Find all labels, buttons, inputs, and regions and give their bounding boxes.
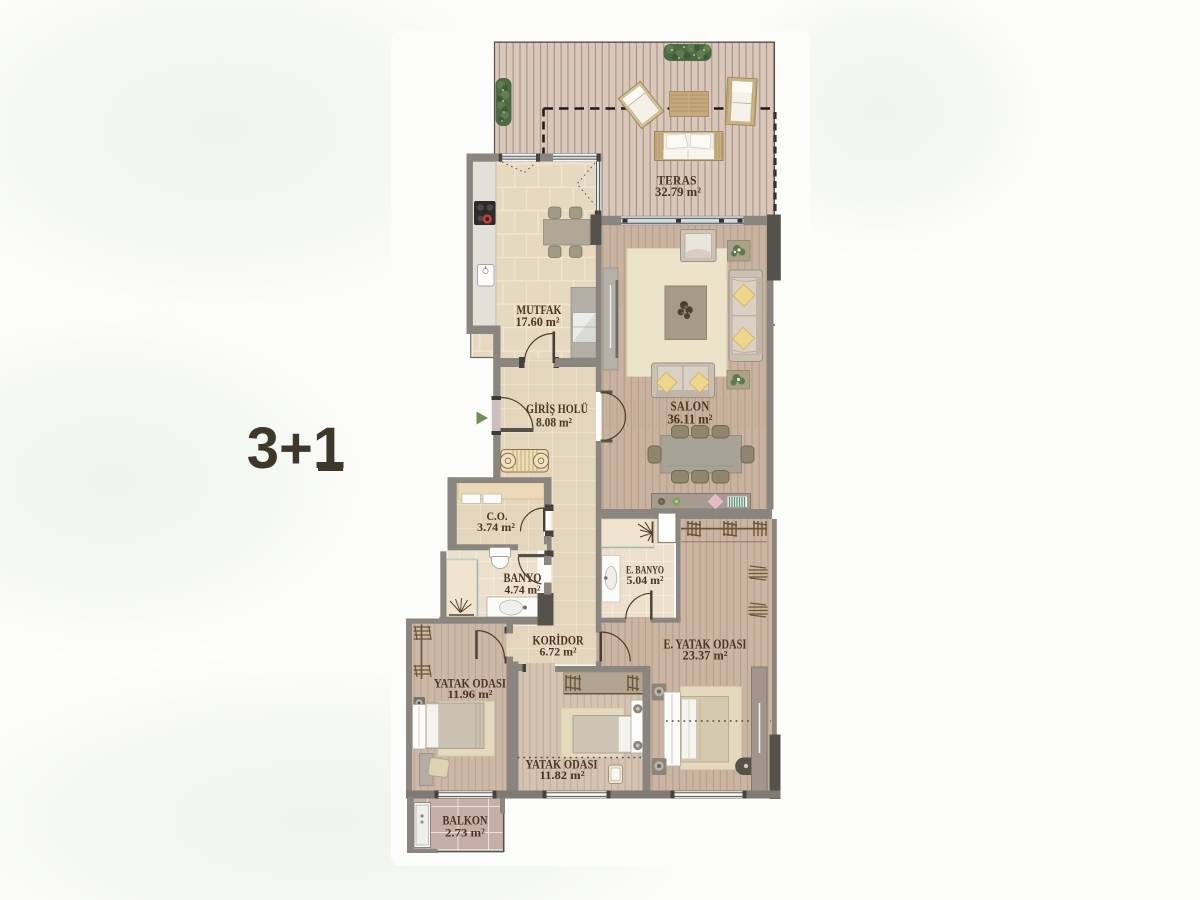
svg-text:2.73 m²: 2.73 m² — [445, 826, 485, 840]
svg-text:3.74 m²: 3.74 m² — [477, 522, 516, 534]
svg-text:8.08 m²: 8.08 m² — [536, 416, 572, 430]
svg-text:11.82 m²: 11.82 m² — [540, 768, 585, 782]
svg-text:GİRİŞ HOLÜ: GİRİŞ HOLÜ — [526, 402, 588, 416]
svg-text:11.96 m²: 11.96 m² — [448, 687, 493, 701]
svg-text:C.O.: C.O. — [487, 509, 508, 523]
svg-text:36.11 m²: 36.11 m² — [668, 412, 713, 427]
svg-text:5.04 m²: 5.04 m² — [627, 575, 665, 587]
svg-text:17.60 m²: 17.60 m² — [516, 315, 560, 329]
svg-text:32.79 m²: 32.79 m² — [655, 185, 701, 199]
svg-text:4.74 m²: 4.74 m² — [505, 583, 541, 597]
svg-text:3+1: 3+1 — [247, 416, 345, 481]
svg-text:23.37 m²: 23.37 m² — [683, 649, 728, 663]
svg-text:6.72 m²: 6.72 m² — [540, 645, 577, 659]
